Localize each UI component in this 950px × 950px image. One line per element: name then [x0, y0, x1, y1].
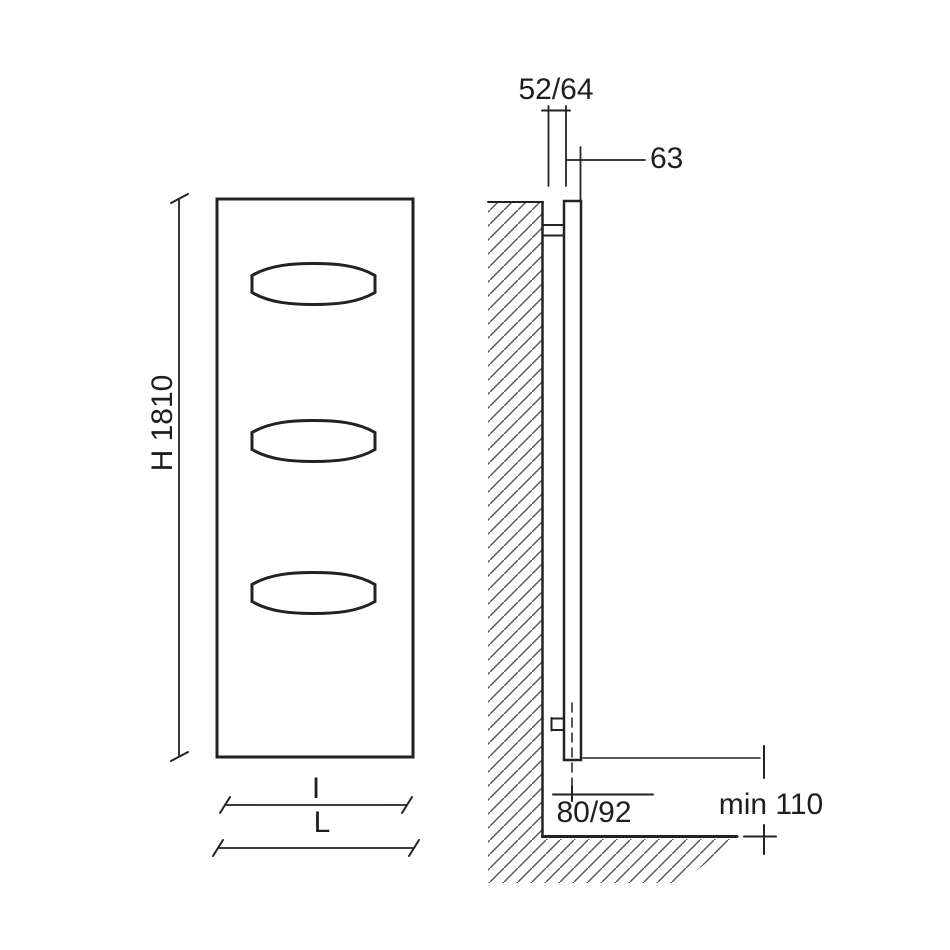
depth-dimension-label: 52/64	[518, 73, 593, 106]
drawing-canvas: H 1810 I L	[0, 0, 950, 950]
floor-clearance-label: min 110	[719, 788, 824, 821]
radiator-dimension-diagram: H 1810 I L	[0, 0, 950, 950]
wall-offset-dimension-label: 63	[650, 142, 683, 175]
inner-width-dimension-label: I	[312, 772, 320, 805]
height-dimension-label: H 1810	[146, 375, 179, 472]
overall-width-dimension-label: L	[314, 806, 331, 839]
radiator-front-outline	[217, 199, 413, 757]
pipe-offset-dimension-label: 80/92	[556, 796, 631, 829]
radiator-side-profile	[564, 201, 581, 760]
wall-hatch	[488, 203, 542, 883]
